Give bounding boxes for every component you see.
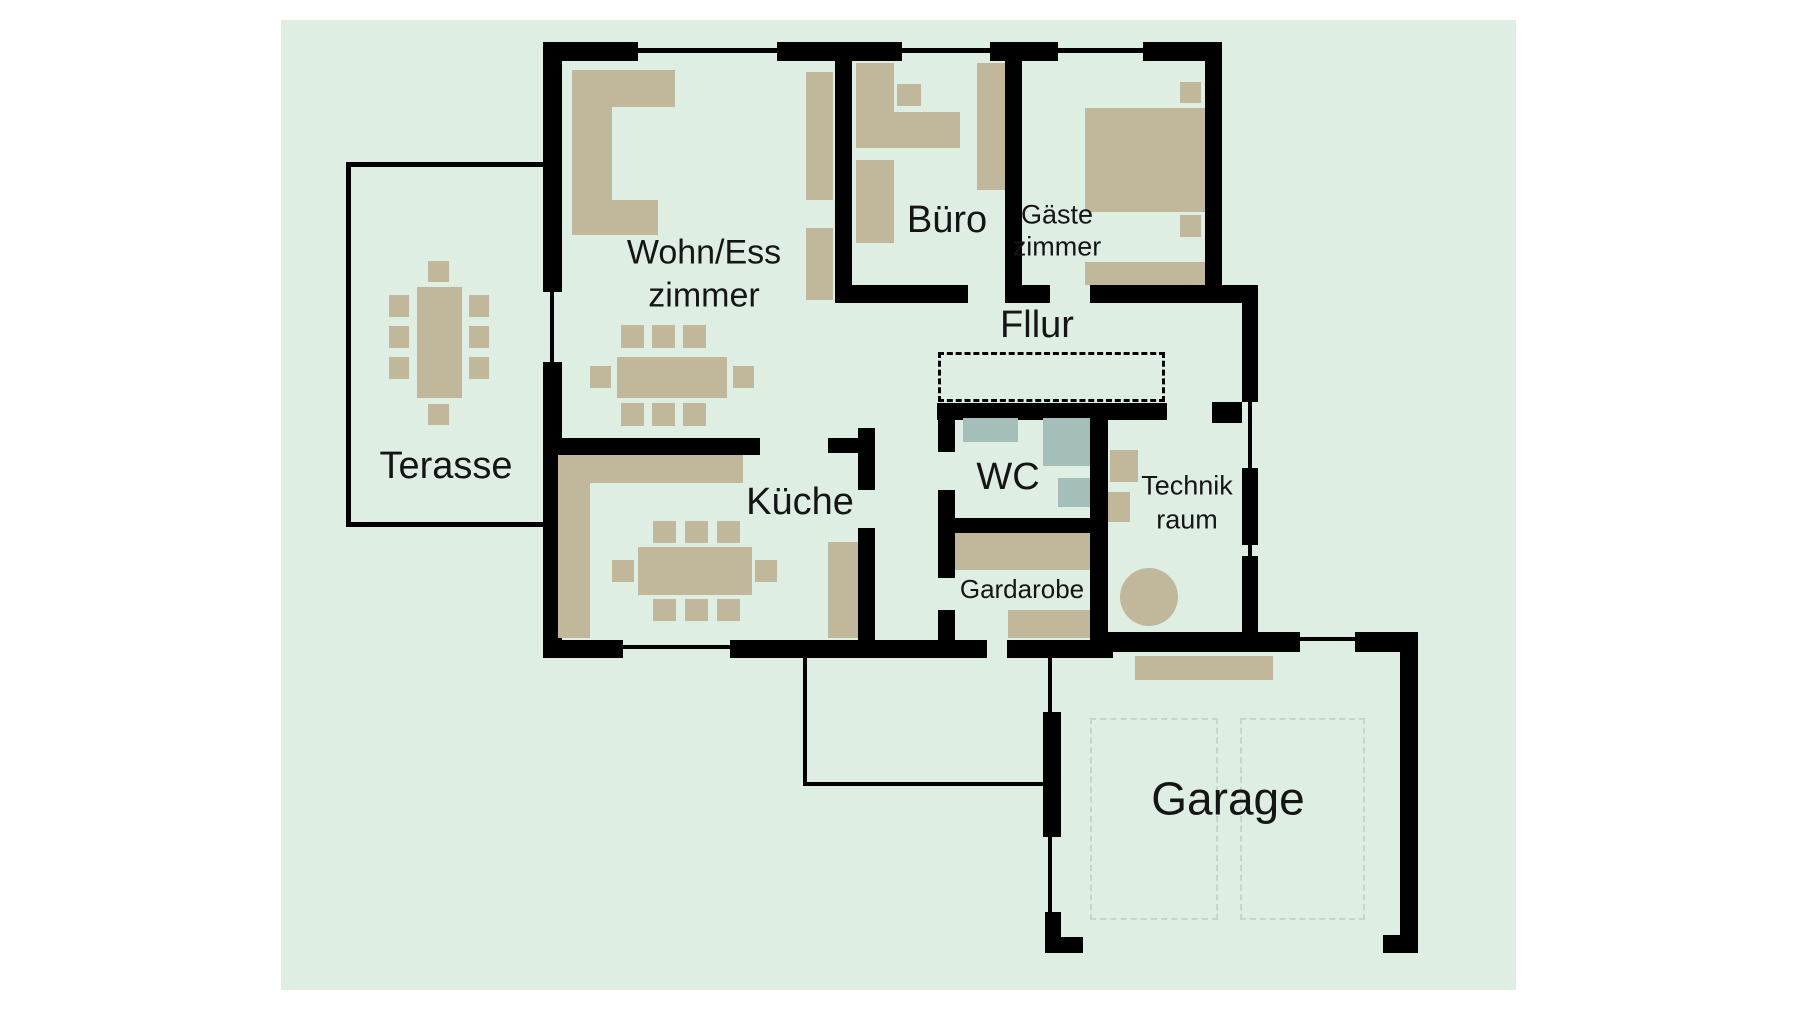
room-label-terasse-text: Terasse xyxy=(379,445,512,487)
flur-cabinet-outline xyxy=(938,352,1165,402)
room-label-kueche-text: Küche xyxy=(746,481,854,523)
room-label-gardarobe: Gardarobe xyxy=(960,575,1084,605)
room-label-terasse: Terasse xyxy=(379,445,512,489)
buero-desk-lower xyxy=(856,160,894,243)
wohn-chair xyxy=(683,325,706,348)
sofa-left-section xyxy=(572,70,612,235)
room-label-wohn-ess-line2: zimmer xyxy=(627,274,781,317)
room-label-gardarobe-text: Gardarobe xyxy=(960,574,1084,604)
room-label-wc-text: WC xyxy=(976,456,1039,498)
terasse-chair xyxy=(469,357,489,379)
technik-boiler-tank xyxy=(1120,568,1178,626)
room-label-wc: WC xyxy=(976,456,1039,500)
kueche-table xyxy=(638,547,752,595)
wall-wc-left-upper xyxy=(938,403,955,452)
room-label-technik: Technik raum xyxy=(1141,469,1233,537)
room-label-garage-text: Garage xyxy=(1151,773,1304,825)
room-label-gaeste-line1: Gäste xyxy=(1021,200,1093,230)
sofa-bottom-arm xyxy=(612,200,658,235)
wall-east-upper xyxy=(1205,42,1222,303)
kueche-chair xyxy=(612,560,634,582)
room-label-flur-text: Fllur xyxy=(1000,304,1074,346)
terasse-table xyxy=(417,287,462,398)
room-label-wohn-ess: Wohn/Ess zimmer xyxy=(627,232,781,317)
room-label-gaeste: Gäste zimmer xyxy=(1013,199,1102,264)
wohn-chair xyxy=(733,366,754,388)
wc-sink xyxy=(963,418,1018,442)
buero-desk-horizontal xyxy=(894,112,960,148)
buero-desk-chair xyxy=(897,84,921,106)
path-line-horizontal xyxy=(803,782,1051,786)
wc-bidet xyxy=(1058,478,1090,507)
gaeste-dresser xyxy=(1085,262,1205,285)
wohn-chair xyxy=(621,403,644,426)
wall-gaeste-bottom xyxy=(1090,285,1258,303)
terasse-chair xyxy=(428,261,449,282)
wall-terasse-bottom xyxy=(346,522,548,527)
wohn-dining-table xyxy=(617,357,727,398)
gardarobe-wardrobe xyxy=(955,533,1090,570)
gaeste-nightstand-top xyxy=(1180,82,1201,103)
wall-terasse-top xyxy=(346,162,548,167)
kueche-chair xyxy=(685,521,708,543)
wall-east-window-line-1 xyxy=(1248,402,1252,468)
buero-desk-vertical xyxy=(856,63,894,148)
wohn-shelf-lower xyxy=(806,228,833,300)
room-label-technik-line2: raum xyxy=(1141,503,1233,537)
room-label-buero: Büro xyxy=(907,199,987,243)
path-line-vertical xyxy=(803,658,807,786)
kueche-chair xyxy=(717,521,740,543)
wall-wohn-kueche-stub xyxy=(828,438,858,453)
technik-unit-lower xyxy=(1108,492,1130,522)
wall-garage-left-foot xyxy=(1061,937,1083,953)
room-label-gaeste-line2: zimmer xyxy=(1013,231,1102,263)
terasse-chair xyxy=(428,404,449,425)
room-label-technik-line1: Technik xyxy=(1141,470,1233,500)
wall-wohn-kueche-divider xyxy=(558,438,760,455)
terasse-chair xyxy=(389,326,409,348)
wall-gardarobe-left-lower xyxy=(938,610,955,658)
wall-bottom-window-line xyxy=(623,645,730,649)
wall-bottom-segment-1 xyxy=(543,640,623,658)
kueche-chair xyxy=(685,599,708,621)
room-label-garage: Garage xyxy=(1151,773,1304,826)
gaeste-nightstand-bottom xyxy=(1180,215,1201,237)
wall-wc-right xyxy=(1090,417,1108,652)
wall-wc-left-mid xyxy=(938,490,955,578)
wall-buero-bottom xyxy=(845,285,968,303)
wall-left-upper xyxy=(543,42,562,292)
wall-garage-left-thick xyxy=(1043,712,1061,837)
room-label-flur: Fllur xyxy=(1000,304,1074,348)
wohn-chair xyxy=(621,325,644,348)
gardarobe-bench xyxy=(1008,610,1090,638)
wall-buero-right xyxy=(1005,61,1022,303)
wc-toilet xyxy=(1043,418,1090,466)
kueche-counter-top xyxy=(558,455,743,483)
wall-left-window-line xyxy=(550,272,554,362)
wohn-shelf-upper xyxy=(806,72,833,200)
wall-top-segment-3 xyxy=(990,42,1058,61)
wohn-chair xyxy=(590,366,611,388)
wall-east-window-line-2 xyxy=(1248,545,1252,556)
wall-top-segment-2 xyxy=(777,42,902,61)
wall-garage-right xyxy=(1400,632,1418,953)
wall-garage-left-end xyxy=(1045,912,1061,953)
kueche-chair xyxy=(755,560,777,582)
page: { "plan": { "colors": { "page_background… xyxy=(0,0,1800,1013)
kueche-counter-left xyxy=(558,483,590,638)
wall-buero-left xyxy=(835,61,852,303)
wohn-chair xyxy=(683,403,706,426)
kueche-tall-cabinet xyxy=(828,542,858,638)
wall-east-segment-3 xyxy=(1242,556,1258,652)
wohn-chair xyxy=(652,403,675,426)
sofa-top-arm xyxy=(612,70,675,107)
wall-garage-left-thin-2 xyxy=(1048,837,1052,912)
wall-garage-top-window-line xyxy=(1300,637,1355,641)
wall-kueche-right-upper xyxy=(858,428,875,490)
kueche-chair xyxy=(653,599,676,621)
room-label-buero-text: Büro xyxy=(907,199,987,241)
floorplan-canvas: Terasse Wohn/Ess zimmer Büro Gäste zimme… xyxy=(281,20,1516,990)
technik-unit-upper xyxy=(1110,450,1138,482)
terasse-chair xyxy=(389,295,409,317)
wall-east-segment-1 xyxy=(1242,285,1258,402)
terasse-chair xyxy=(389,357,409,379)
wall-garage-top-segment-1 xyxy=(1108,632,1300,652)
gaeste-bed xyxy=(1085,108,1205,212)
room-label-kueche: Küche xyxy=(746,481,854,525)
wohn-chair xyxy=(652,325,675,348)
wall-garage-left-thin-1 xyxy=(1048,658,1052,712)
buero-shelf xyxy=(977,63,1005,190)
kueche-chair xyxy=(653,521,676,543)
terasse-chair xyxy=(469,326,489,348)
wall-terasse-left xyxy=(346,162,351,527)
terasse-chair xyxy=(469,295,489,317)
wall-east-segment-2 xyxy=(1242,468,1258,545)
garage-shelf xyxy=(1135,656,1273,680)
wall-east-window-sill-stub xyxy=(1212,402,1242,423)
wall-garage-right-foot xyxy=(1383,935,1400,953)
kueche-chair xyxy=(717,599,740,621)
wall-kueche-right-lower xyxy=(858,528,875,658)
room-label-wohn-ess-line1: Wohn/Ess xyxy=(627,234,781,272)
